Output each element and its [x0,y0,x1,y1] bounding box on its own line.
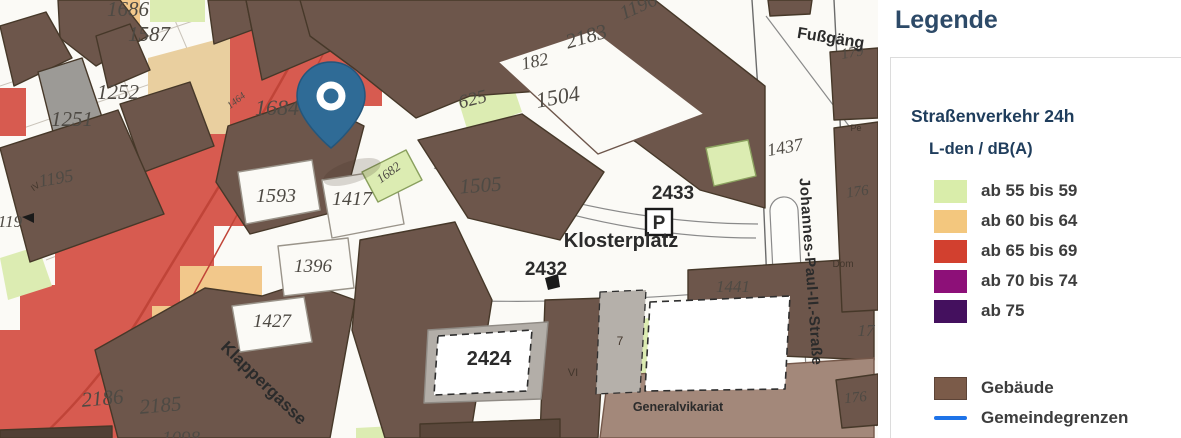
parcel-label: 1427 [253,311,293,332]
parcel-label: 1593 [256,185,296,207]
legend-section-title: Straßenverkehr 24h [911,106,1074,127]
legend-row-label: Gebäude [981,378,1054,398]
klosterplatz-label: Klosterplatz [564,230,678,252]
legend-subtitle: L-den / dB(A) [929,140,1033,159]
map-canvas[interactable]: P 1686 1587 1252 1251 1195 119 1684 1593… [0,0,878,438]
legend-row: ab 75 [934,296,1077,326]
legend-other-list: Gebäude Gemeindegrenzen [934,373,1128,433]
legend-row-label: ab 75 [981,301,1024,321]
legend-row: Gebäude [934,373,1128,403]
parcel-label: 1441 [716,277,750,296]
noise-map-app: P 1686 1587 1252 1251 1195 119 1684 1593… [0,0,1181,438]
parcel-label-2424: 2424 [467,348,512,370]
pe-label: Pe [850,123,861,133]
legend-row-label: ab 55 bis 59 [981,181,1077,201]
legend-box: Straßenverkehr 24h L-den / dB(A) ab 55 b… [890,57,1181,438]
parcel-label: 2186 [80,384,124,412]
parcel-label: 1098 [162,428,201,438]
legend-row: ab 60 bis 64 [934,206,1077,236]
noise-60-64-swatch [934,210,967,233]
roman-vi-label: VI [568,367,578,379]
legend-row-label: ab 70 bis 74 [981,271,1077,291]
noise-70-74-swatch [934,270,967,293]
legend-row-label: ab 60 bis 64 [981,211,1077,231]
municipal-boundary-line-swatch [934,416,967,420]
number-7-label: 7 [617,334,624,348]
legend-title: Legende [895,6,998,35]
legend-row-label: ab 65 bis 69 [981,241,1077,261]
buildings-swatch [934,377,967,400]
noise-65-69-swatch [934,240,967,263]
parcel-label: 1686 [107,0,150,21]
parcel-label: 1684 [255,95,299,120]
parcel-label: 1251 [51,107,93,131]
dom-label: Dom [832,259,853,270]
generalvikariat-label: Generalvikariat [633,400,724,414]
parcel-label: 1505 [459,172,503,199]
legend-row: ab 65 bis 69 [934,236,1077,266]
parcel-label-2433: 2433 [652,183,694,204]
parcel-label: 1417 [332,188,373,210]
legend-row: ab 55 bis 59 [934,176,1077,206]
noise-55-59-swatch [934,180,967,203]
legend-row: Gemeindegrenzen [934,403,1128,433]
parcel-label: 2185 [138,391,182,419]
parcel-label: 17 [858,321,877,340]
legend-panel: Legende Straßenverkehr 24h L-den / dB(A)… [878,0,1181,438]
parcel-label: 1396 [294,256,333,277]
parcel-label: 1252 [97,80,140,104]
parcel-label: 1587 [128,22,172,46]
parcel-label: 176 [845,182,870,201]
pin-hole [324,89,339,104]
legend-row-label: Gemeindegrenzen [981,408,1128,428]
noise-75-swatch [934,300,967,323]
legend-class-list: ab 55 bis 59 ab 60 bis 64 ab 65 bis 69 a… [934,176,1077,326]
parcel-label: 176 [844,389,869,407]
legend-row: ab 70 bis 74 [934,266,1077,296]
parcel-label: 119 [0,212,23,231]
parcel-label-2432: 2432 [525,259,567,280]
